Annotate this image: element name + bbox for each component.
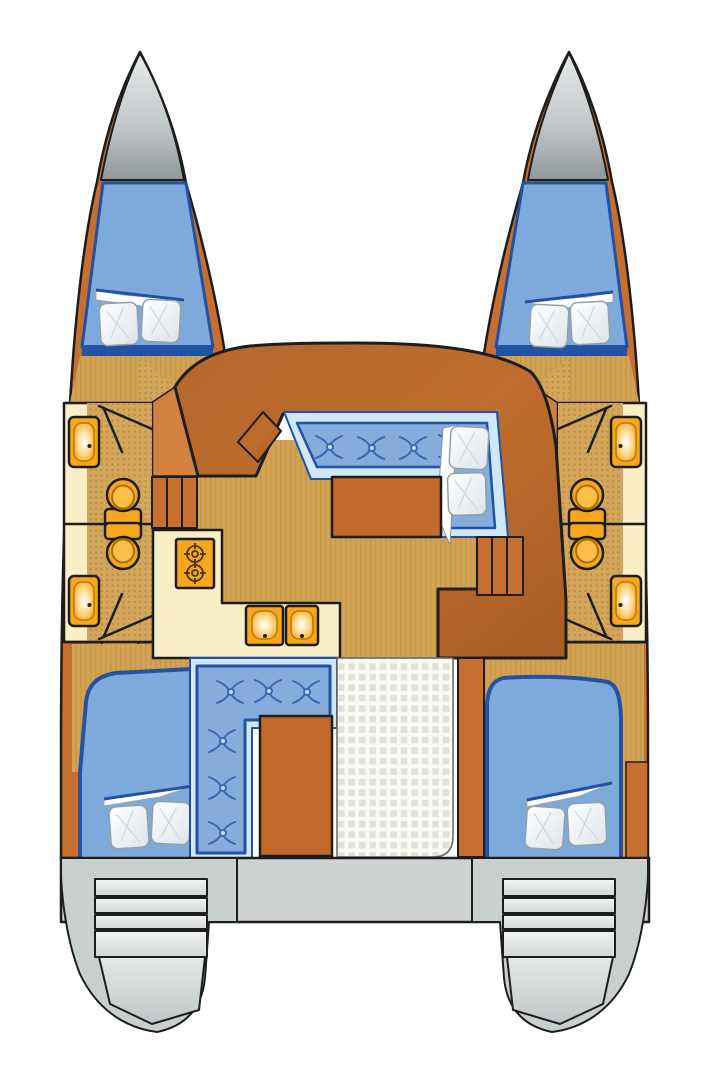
starboard-bathrooms [558, 403, 646, 642]
port-aft-cabin [64, 642, 193, 859]
starboard-stern-steps[interactable] [503, 879, 615, 1024]
port-stern-steps[interactable] [95, 879, 207, 1024]
cockpit-grid-floor [337, 658, 453, 857]
catamaran-floor-plan [0, 0, 711, 1080]
galley-double-sink [246, 606, 318, 645]
cockpit-side-wall [458, 658, 484, 857]
port-bathrooms [64, 403, 152, 642]
port-companionway-steps[interactable] [152, 477, 197, 528]
hull-side-wall [626, 762, 648, 858]
salon-table [332, 477, 441, 537]
starboard-aft-cabin [484, 642, 648, 859]
cockpit [190, 658, 484, 859]
cockpit-table [260, 716, 332, 856]
bed-foot-edge [82, 345, 213, 356]
starboard-companionway-steps[interactable] [477, 537, 523, 595]
